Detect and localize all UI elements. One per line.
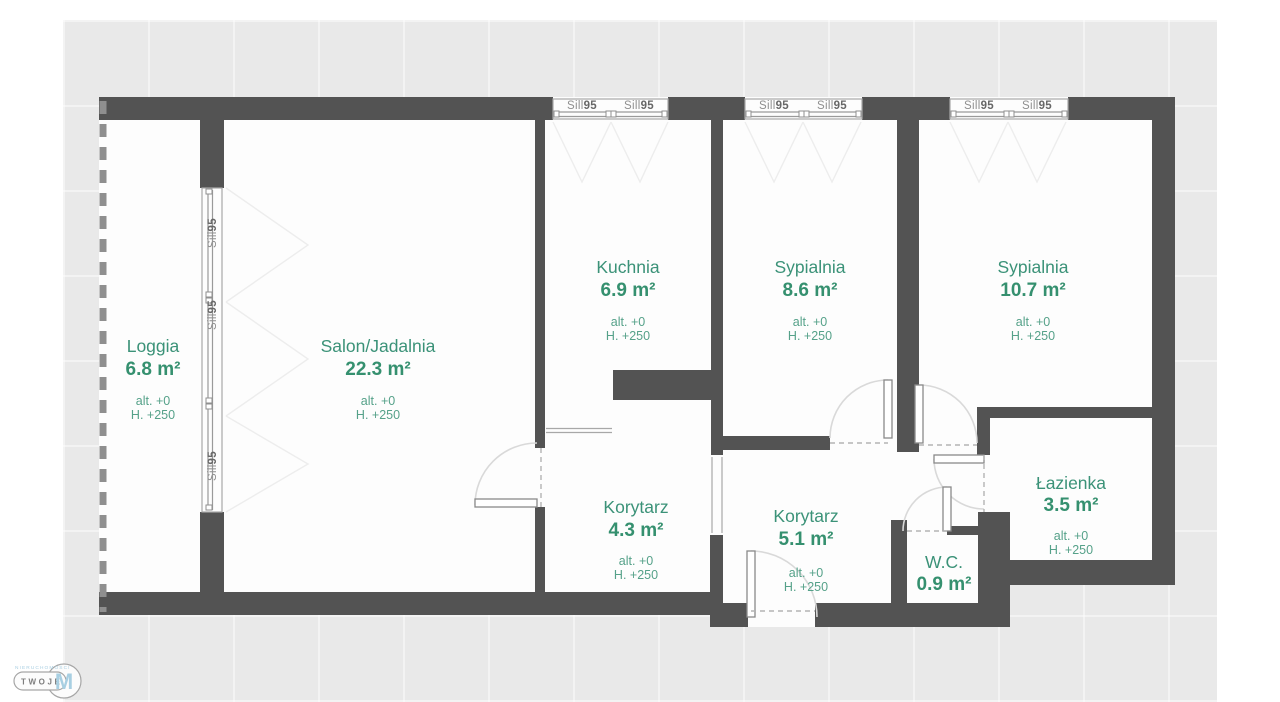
room-name: Łazienka (1036, 473, 1106, 493)
room-alt: alt. +0 (793, 315, 827, 329)
room-alt: alt. +0 (1016, 315, 1050, 329)
wall-loggia-divider-top (200, 120, 224, 188)
room-name: Sypialnia (997, 257, 1068, 277)
room-name: Kuchnia (596, 257, 660, 277)
wall-top-d (1068, 97, 1175, 120)
room-area: 4.3 m² (609, 520, 664, 541)
room-area: 22.3 m² (345, 359, 410, 380)
wall-loggia-divider-bottom (200, 512, 224, 592)
room-height: H. +250 (1011, 329, 1055, 343)
room-name: Loggia (127, 336, 180, 356)
room-name: Korytarz (773, 506, 838, 526)
room-name: Salon/Jadalnia (321, 336, 436, 356)
room-area: 6.9 m² (601, 280, 656, 301)
room-height: H. +250 (788, 329, 832, 343)
room-name: Korytarz (603, 497, 668, 517)
room-alt: alt. +0 (361, 394, 395, 408)
window-sill-label: Sill95 (567, 100, 597, 112)
wall-kitchen-divider (711, 120, 723, 455)
room-height: H. +250 (606, 329, 650, 343)
logo-letter-m: M (55, 669, 73, 694)
room-alt: alt. +0 (789, 566, 823, 580)
window-sill-label: Sill95 (624, 100, 654, 112)
room-height: H. +250 (614, 568, 658, 582)
agency-logo: NIERUCHOMOŚCI TWOJE M (14, 663, 81, 698)
wall-top-c (862, 97, 950, 120)
room-area: 0.9 m² (917, 574, 972, 595)
room-height: H. +250 (1049, 543, 1093, 557)
screenshot-stage: Sill95 Sill95 Sill95 Sill95 Sill95 Sill9… (0, 0, 1280, 702)
wall-right (1152, 120, 1175, 585)
room-alt: alt. +0 (1054, 529, 1088, 543)
wall-bottom-left (99, 592, 720, 615)
window-sill-label: Sill95 (759, 100, 789, 112)
room-area: 10.7 m² (1000, 280, 1065, 301)
window-sill-label: Sill95 (207, 451, 219, 481)
wall-salon-east-bottom (535, 507, 545, 592)
window-sill-label: Sill95 (817, 100, 847, 112)
room-name: W.C. (925, 552, 963, 572)
room-height: H. +250 (784, 580, 828, 594)
window-sill-label: Sill95 (207, 218, 219, 248)
window-sill-label: Sill95 (207, 300, 219, 330)
room-area: 5.1 m² (779, 529, 834, 550)
wall-kitchen-bottom (613, 370, 722, 400)
wall-corridor-divider-lower (710, 535, 723, 603)
wall-bathroom-top (990, 407, 1152, 418)
room-height: H. +250 (131, 408, 175, 422)
room-area: 3.5 m² (1044, 495, 1099, 516)
room-area: 8.6 m² (783, 280, 838, 301)
wall-bottom-entry-b (815, 603, 1010, 627)
room-name: Sypialnia (774, 257, 845, 277)
room-alt: alt. +0 (611, 315, 645, 329)
wall-wc-west (891, 520, 907, 627)
wall-top-b (668, 97, 745, 120)
room-alt: alt. +0 (619, 554, 653, 568)
window-sill-label: Sill95 (964, 100, 994, 112)
room-label-loggia: Loggia 6.8 m² alt. +0 H. +250 (126, 336, 181, 422)
window-sill-label: Sill95 (1022, 100, 1052, 112)
wall-bathroom-west-upper (977, 407, 990, 455)
wall-bathroom-bottom (990, 560, 1175, 585)
wall-top-a (99, 97, 553, 120)
wall-wc-north (947, 526, 980, 535)
wall-corridor2-top (723, 436, 830, 450)
floor-plan-svg: Sill95 Sill95 Sill95 Sill95 Sill95 Sill9… (0, 0, 1280, 702)
room-height: H. +250 (356, 408, 400, 422)
room-area: 6.8 m² (126, 359, 181, 380)
room-alt: alt. +0 (136, 394, 170, 408)
wall-salon-east-top (535, 120, 545, 448)
